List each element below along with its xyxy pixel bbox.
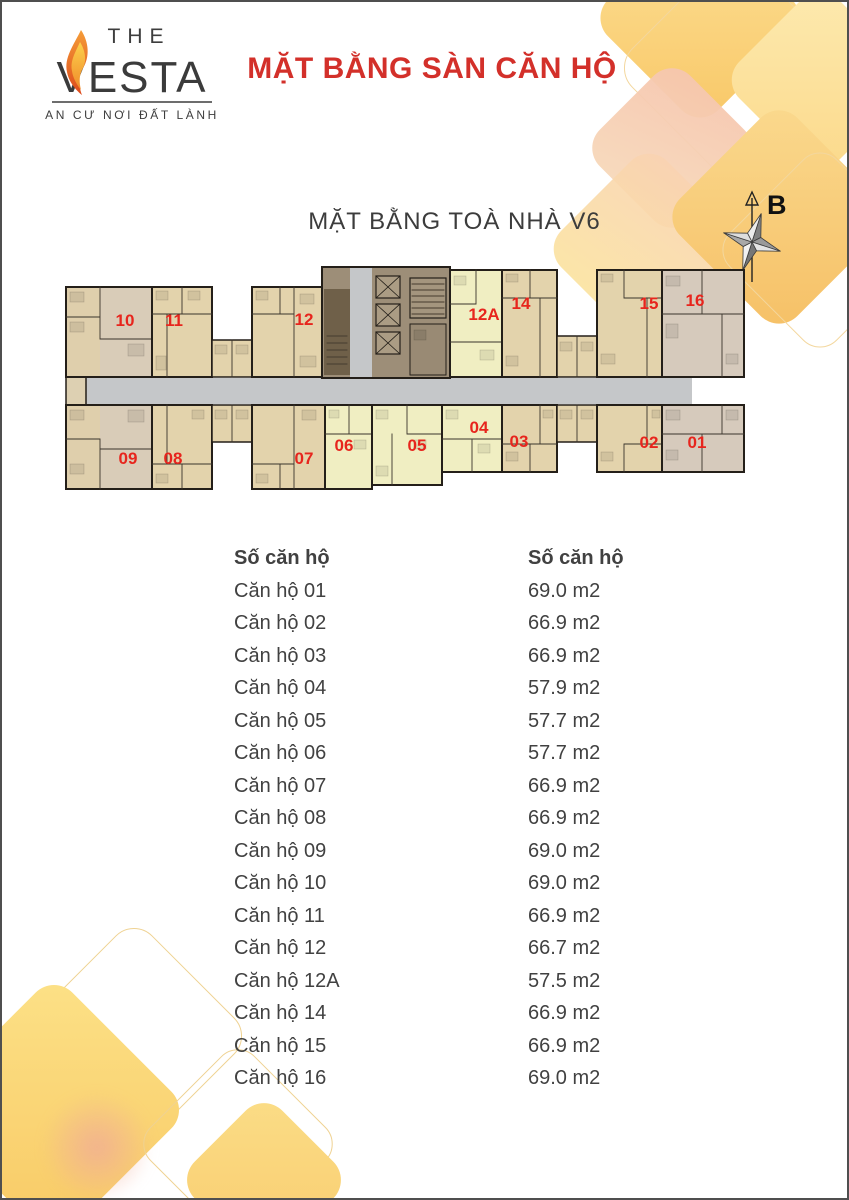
unit-name: Căn hộ 12 (234, 932, 528, 965)
unit-name: Căn hộ 12A (234, 965, 528, 998)
svg-text:10: 10 (116, 311, 135, 330)
compass-label: B (767, 190, 787, 220)
unit-area: 69.0 m2 (528, 867, 634, 900)
unit-name: Căn hộ 14 (234, 997, 528, 1030)
table-row: Căn hộ 14 66.9 m2 (234, 997, 634, 1030)
mid-rooms (212, 340, 252, 377)
unit-name: Căn hộ 04 (234, 672, 528, 705)
stairwell (410, 278, 446, 318)
apartment-09: 09 (66, 405, 152, 489)
svg-text:02: 02 (640, 433, 659, 452)
unit-name: Căn hộ 16 (234, 1062, 528, 1095)
mid-rooms (557, 336, 597, 377)
unit-area: 57.7 m2 (528, 705, 634, 738)
apartment-11: 11 (152, 287, 212, 377)
left-connector (66, 377, 86, 405)
unit-area: 66.9 m2 (528, 997, 634, 1030)
svg-text:01: 01 (688, 433, 707, 452)
table-row: Căn hộ 04 57.9 m2 (234, 672, 634, 705)
apartment-02: 02 (597, 405, 662, 472)
unit-area: 69.0 m2 (528, 575, 634, 608)
apartment-area-table: Số căn hộ Số căn hộ Căn hộ 01 69.0 m2 Că… (234, 542, 634, 1095)
building-core (322, 267, 450, 378)
unit-name: Căn hộ 11 (234, 900, 528, 933)
unit-name: Căn hộ 08 (234, 802, 528, 835)
floor-plan: 10 11 (62, 264, 767, 509)
brochure-page: THE VESTA AN CƯ NƠI ĐẤT LÀNH MẶT BẰNG SÀ… (0, 0, 849, 1200)
apartment-15: 15 (597, 270, 662, 377)
unit-area: 66.9 m2 (528, 770, 634, 803)
table-row: Căn hộ 01 69.0 m2 (234, 575, 634, 608)
svg-text:05: 05 (408, 436, 427, 455)
svg-text:09: 09 (119, 449, 138, 468)
unit-name: Căn hộ 05 (234, 705, 528, 738)
table-row: Căn hộ 12 66.7 m2 (234, 932, 634, 965)
svg-text:03: 03 (510, 432, 529, 451)
apartment-03: 03 (502, 405, 557, 472)
svg-text:14: 14 (512, 294, 531, 313)
unit-area: 66.9 m2 (528, 802, 634, 835)
unit-area: 66.9 m2 (528, 607, 634, 640)
svg-text:12: 12 (295, 310, 314, 329)
table-row: Căn hộ 12A 57.5 m2 (234, 965, 634, 998)
apartment-10: 10 (66, 287, 152, 377)
diamond-decoration (42, 1092, 152, 1200)
unit-area: 57.7 m2 (528, 737, 634, 770)
svg-text:11: 11 (165, 311, 183, 330)
column-header-unit: Số căn hộ (234, 542, 528, 575)
unit-name: Căn hộ 02 (234, 607, 528, 640)
mid-rooms (212, 405, 252, 442)
apartment-08: 08 (152, 405, 212, 489)
unit-area: 69.0 m2 (528, 1062, 634, 1095)
table-header-row: Số căn hộ Số căn hộ (234, 542, 634, 575)
apartment-06: 06 (325, 405, 372, 489)
unit-area: 69.0 m2 (528, 835, 634, 868)
table-row: Căn hộ 15 66.9 m2 (234, 1030, 634, 1063)
table-row: Căn hộ 03 66.9 m2 (234, 640, 634, 673)
apartment-01: 01 (662, 405, 744, 472)
apartment-16: 16 (662, 270, 744, 377)
apartment-05: 05 (372, 405, 442, 485)
apartment-04: 04 (442, 405, 502, 472)
unit-name: Căn hộ 15 (234, 1030, 528, 1063)
svg-text:04: 04 (470, 418, 489, 437)
logo-the-text: THE (108, 25, 171, 48)
apartment-14: 14 (502, 270, 557, 377)
elevators (376, 276, 400, 354)
svg-text:08: 08 (164, 449, 183, 468)
table-row: Căn hộ 11 66.9 m2 (234, 900, 634, 933)
mid-rooms (557, 405, 597, 442)
table-row: Căn hộ 10 69.0 m2 (234, 867, 634, 900)
unit-area: 66.9 m2 (528, 1030, 634, 1063)
table-row: Căn hộ 08 66.9 m2 (234, 802, 634, 835)
vesta-logo: THE VESTA AN CƯ NƠI ĐẤT LÀNH (40, 16, 220, 129)
apartment-07: 07 (252, 405, 325, 489)
unit-name: Căn hộ 10 (234, 867, 528, 900)
unit-name: Căn hộ 06 (234, 737, 528, 770)
unit-area: 57.9 m2 (528, 672, 634, 705)
svg-text:07: 07 (295, 449, 314, 468)
unit-area: 66.9 m2 (528, 900, 634, 933)
page-title: MẶT BẰNG SÀN CĂN HỘ (202, 52, 662, 86)
table-row: Căn hộ 02 66.9 m2 (234, 607, 634, 640)
unit-name: Căn hộ 07 (234, 770, 528, 803)
table-row: Căn hộ 09 69.0 m2 (234, 835, 634, 868)
unit-area: 66.9 m2 (528, 640, 634, 673)
table-row: Căn hộ 06 57.7 m2 (234, 737, 634, 770)
table-row: Căn hộ 16 69.0 m2 (234, 1062, 634, 1095)
svg-text:15: 15 (640, 294, 659, 313)
apartment-12A: 12A (450, 270, 502, 377)
corridor (86, 378, 692, 404)
svg-text:12A: 12A (468, 305, 499, 324)
logo-tagline: AN CƯ NƠI ĐẤT LÀNH (45, 107, 219, 122)
svg-text:16: 16 (686, 291, 705, 310)
unit-name: Căn hộ 03 (234, 640, 528, 673)
unit-name: Căn hộ 09 (234, 835, 528, 868)
svg-text:06: 06 (335, 436, 354, 455)
column-header-area: Số căn hộ (528, 542, 634, 575)
unit-area: 57.5 m2 (528, 965, 634, 998)
table-row: Căn hộ 05 57.7 m2 (234, 705, 634, 738)
unit-area: 66.7 m2 (528, 932, 634, 965)
apartment-12: 12 (252, 287, 322, 377)
table-row: Căn hộ 07 66.9 m2 (234, 770, 634, 803)
unit-name: Căn hộ 01 (234, 575, 528, 608)
